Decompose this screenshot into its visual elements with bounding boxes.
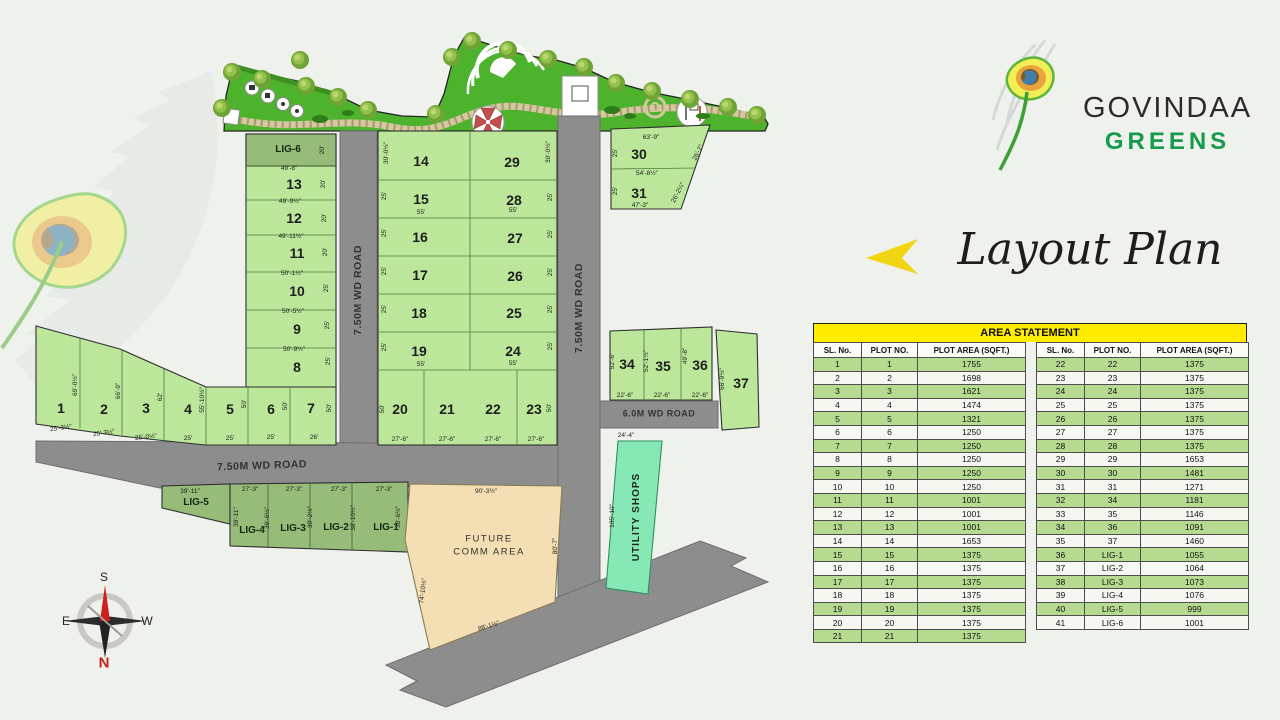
area-statement-row: 36LIG-11055	[1037, 548, 1249, 562]
dim-55-label: 55'	[509, 361, 517, 368]
area-statement-row: 41LIG-61001	[1037, 616, 1249, 630]
plot-15-label: 15	[413, 192, 429, 206]
dim-55-label: 55'	[417, 362, 425, 369]
plot-34-label: 34	[619, 357, 635, 371]
plot-16-label: 16	[412, 230, 428, 244]
area-statement-table-left: SL. No. PLOT NO. PLOT AREA (SQFT.) 11175…	[813, 342, 1026, 643]
plot-24-label: 24	[505, 344, 521, 358]
area-statement-row: 111755	[814, 358, 1026, 372]
plot-3-label: 3	[142, 401, 150, 415]
road-label-6m: 6.0M WD ROAD	[623, 410, 696, 419]
dim-50-label: 50'	[327, 404, 334, 412]
plot-37-label: 37	[733, 376, 749, 390]
dim-25-label: 25'	[267, 435, 275, 442]
plot-block-30-31	[611, 125, 710, 209]
plot-14-label: 14	[413, 154, 429, 168]
title-block: Layout Plan	[860, 218, 1260, 288]
area-statement-row: 19191375	[814, 602, 1026, 616]
area-statement-row: 33351146	[1037, 507, 1249, 521]
plot-5-label: 5	[226, 402, 234, 416]
dim-66-9-label: 66'-9½"	[720, 368, 727, 390]
plot-11-label: 11	[290, 246, 305, 260]
dim-25-label: 25'	[548, 230, 555, 238]
dim-50-1-label: 50'-1½"	[281, 271, 303, 278]
area-statement-row: 20201375	[814, 616, 1026, 630]
dim-49-8-label: 49'-8"	[281, 166, 298, 173]
dim-55-label: 55'	[509, 208, 517, 215]
dim-55-label: 55'	[417, 210, 425, 217]
dim-20-label: 20'	[323, 248, 330, 256]
plot-28-label: 28	[506, 193, 522, 207]
area-statement-row: 30301481	[1037, 466, 1249, 480]
area-statement-row: 24241375	[1037, 385, 1249, 399]
dim-22-6-label: 22'-6"	[692, 393, 709, 400]
col-plot-area: PLOT AREA (SQFT.)	[918, 343, 1026, 358]
dim-50-9-label: 50'-9½"	[283, 347, 305, 354]
dim-54-8-label: 54'-8½"	[636, 171, 658, 178]
plot-1-label: 1	[57, 401, 65, 415]
site-map	[0, 0, 800, 720]
dim-30-0-label: 30'-0½"	[546, 141, 553, 163]
area-statement-row: 25251375	[1037, 398, 1249, 412]
area-statement-row: 441474	[814, 398, 1026, 412]
plot-31-label: 31	[631, 186, 647, 200]
dim-25-label: 25'	[325, 321, 332, 329]
dim-20-label: 20'	[322, 214, 329, 222]
area-statement-row: 18181375	[814, 589, 1026, 603]
dim-69-0-label: 69'-0½"	[73, 374, 80, 396]
dim-52-6-label: 52'-6"	[610, 353, 617, 370]
area-comm-area-label: COMM AREA	[453, 547, 525, 557]
plot-17-label: 17	[412, 268, 428, 282]
dim-26-label: 26'	[310, 435, 318, 442]
dim-39-6-label: 39'-6½"	[265, 507, 272, 529]
dim-25-label: 25'	[382, 305, 389, 313]
compass-south-label: S	[100, 571, 108, 583]
area-statement-row: 11111001	[814, 493, 1026, 507]
plot-lig-3-label: LIG-3	[280, 524, 306, 534]
compass-west-label: W	[141, 615, 152, 627]
dim-25-label: 25'	[382, 229, 389, 237]
area-statement-row: 35371460	[1037, 534, 1249, 548]
plot-36-label: 36	[692, 358, 708, 372]
dim-49-8-label: 49'-8"	[683, 348, 690, 365]
dim-27-6-label: 27'-6"	[392, 437, 409, 444]
plot-2-label: 2	[100, 402, 108, 416]
dim-39-11-label: 39'-11"	[180, 489, 200, 496]
dim-39-11-label: 39'-11"	[234, 507, 241, 527]
dim-24-4-label: 24'-4"	[618, 433, 635, 440]
plot-4-label: 4	[184, 402, 192, 416]
plot-7-label: 7	[307, 401, 315, 415]
area-statement-row: 37LIG-21064	[1037, 561, 1249, 575]
road-label-vertical-1: 7.50M WD ROAD	[353, 245, 364, 335]
plot-10-label: 10	[289, 284, 305, 298]
area-statement-row: 28281375	[1037, 439, 1249, 453]
area-statement-row: 26261375	[1037, 412, 1249, 426]
area-statement-row: 31311271	[1037, 480, 1249, 494]
dim-63-9-label: 63'-9"	[643, 135, 660, 142]
dim-20-label: 20'	[321, 180, 328, 188]
plot-29-label: 29	[504, 155, 520, 169]
area-statement-row: 15151375	[814, 548, 1026, 562]
dim-27-3-label: 27'-3"	[242, 487, 259, 494]
plot-lig-5-label: LIG-5	[183, 498, 209, 508]
dim-25-label: 25'	[382, 267, 389, 275]
plot-22-label: 22	[485, 402, 501, 416]
area-statement-row: 39LIG-41076	[1037, 589, 1249, 603]
dim-22-6-label: 22'-6"	[617, 393, 634, 400]
dim-50-5-label: 50'-5½"	[282, 309, 304, 316]
area-statement-row: 22221375	[1037, 358, 1249, 372]
dim-25-label: 25'	[613, 149, 620, 157]
area-statement-row: 17171375	[814, 575, 1026, 589]
plot-13-label: 13	[286, 177, 302, 191]
area-statement: AREA STATEMENT SL. No. PLOT NO. PLOT ARE…	[813, 323, 1247, 643]
compass-rose	[64, 585, 146, 658]
col-sl-no: SL. No.	[814, 343, 862, 358]
page-title: Layout Plan	[930, 224, 1250, 275]
plot-19-label: 19	[411, 344, 427, 358]
area-future-label: FUTURE	[465, 534, 513, 544]
area-statement-row: 32341181	[1037, 493, 1249, 507]
dim-66-9-label: 66'-9"	[116, 383, 123, 400]
dim-20-label: 20'	[320, 146, 327, 154]
area-statement-row: 14141653	[814, 534, 1026, 548]
brand-name-2: GREENS	[1060, 128, 1275, 156]
plot-lig-6-label: LIG-6	[275, 145, 301, 155]
dim-25-label: 25'	[324, 284, 331, 292]
dim-50-label: 50'	[380, 405, 387, 413]
plot-23-label: 23	[526, 402, 542, 416]
dim-25-label: 25'	[548, 268, 555, 276]
dim-25-label: 25'	[382, 192, 389, 200]
dim-90-3-label: 90'-3½"	[475, 489, 497, 496]
plot-25-label: 25	[506, 306, 522, 320]
col-plot-no: PLOT NO.	[1085, 343, 1141, 358]
road-label-vertical-2: 7.50M WD ROAD	[574, 263, 585, 353]
dim-25-label: 25'	[184, 436, 192, 443]
plot-lig-4-label: LIG-4	[239, 526, 265, 536]
dim-27-3-label: 27'-3"	[376, 487, 393, 494]
dim-27-6-label: 27'-6"	[485, 437, 502, 444]
area-statement-row: 38LIG-31073	[1037, 575, 1249, 589]
dim-27-3-label: 27'-3"	[286, 487, 303, 494]
plot-9-label: 9	[293, 322, 301, 336]
area-statement-row: 991250	[814, 466, 1026, 480]
dim-38-6-label: 38'-6½"	[396, 506, 403, 528]
plot-18-label: 18	[411, 306, 427, 320]
plot-block-central	[378, 131, 557, 445]
brand-name: GOVINDAA	[1060, 92, 1275, 125]
dim-50-label: 50'	[283, 402, 290, 410]
area-statement-title: AREA STATEMENT	[813, 323, 1247, 342]
plot-8-label: 8	[293, 360, 301, 374]
col-sl-no: SL. No.	[1037, 343, 1085, 358]
area-statement-row: 12121001	[814, 507, 1026, 521]
dim-38-10-label: 38'-10½"	[351, 505, 358, 531]
dim-47-3-label: 47'-3"	[632, 203, 649, 210]
plot-blocks	[36, 125, 759, 650]
compass-east-label: E	[62, 615, 70, 627]
dim-25-label: 25'	[548, 193, 555, 201]
area-statement-row: 661250	[814, 425, 1026, 439]
dim-25-label: 25'	[326, 357, 333, 365]
area-statement-row: 27271375	[1037, 425, 1249, 439]
plot-35-label: 35	[655, 359, 671, 373]
plot-20-label: 20	[392, 402, 408, 416]
compass-north-label: N	[99, 656, 110, 671]
col-plot-no: PLOT NO.	[862, 343, 918, 358]
road-vertical-2	[558, 116, 600, 616]
col-plot-area: PLOT AREA (SQFT.)	[1141, 343, 1249, 358]
dim-25-label: 25'	[382, 343, 389, 351]
plot-27-label: 27	[507, 231, 523, 245]
dim-25-label: 25'	[226, 436, 234, 443]
area-statement-row: 771250	[814, 439, 1026, 453]
area-statement-row: 10101250	[814, 480, 1026, 494]
dim-52-1-label: 52'-1½"	[644, 350, 651, 372]
plot-26-label: 26	[507, 269, 523, 283]
area-statement-table-right: SL. No. PLOT NO. PLOT AREA (SQFT.) 22221…	[1036, 342, 1249, 630]
dim-27-6-label: 27'-6"	[439, 437, 456, 444]
dim-25-label: 25'	[548, 342, 555, 350]
dim-22-6-label: 22'-6"	[654, 393, 671, 400]
area-statement-row: 21211375	[814, 629, 1026, 643]
dim-49-9-label: 49'-9½"	[279, 199, 301, 206]
dim-50-label: 50'	[547, 404, 554, 412]
plot-30-label: 30	[631, 147, 647, 161]
dim-80-7-label: 80'-7"	[553, 538, 560, 555]
dim-25-label: 25'	[613, 187, 620, 195]
dim-49-11-label: 49'-11½"	[278, 234, 303, 241]
dim-105-10-label: 105'-10"	[610, 504, 617, 528]
dim-27-6-label: 27'-6"	[528, 437, 545, 444]
layout-plan-page: 7.50M WD ROAD7.50M WD ROAD7.50M WD ROAD6…	[0, 0, 1280, 720]
plot-12-label: 12	[286, 211, 302, 225]
area-statement-row: 881250	[814, 453, 1026, 467]
area-statement-row: 29291653	[1037, 453, 1249, 467]
area-statement-row: 23231375	[1037, 371, 1249, 385]
area-statement-row: 34361091	[1037, 521, 1249, 535]
brand-logo: GOVINDAA GREENS	[975, 30, 1275, 190]
arrow-left-icon	[860, 232, 924, 280]
area-statement-row: 221698	[814, 371, 1026, 385]
dim-30-0-label: 30'-0½"	[384, 142, 391, 164]
plot-lig-2-label: LIG-2	[323, 523, 349, 533]
dim-55-10-label: 55'-10½"	[200, 387, 207, 413]
plot-21-label: 21	[439, 402, 455, 416]
area-statement-row: 40LIG-5999	[1037, 602, 1249, 616]
dim-25-label: 25'	[548, 305, 555, 313]
dim-39-2-label: 39'-2½"	[308, 506, 315, 528]
area-statement-row: 13131001	[814, 521, 1026, 535]
dim-27-3-label: 27'-3"	[331, 487, 348, 494]
plot-6-label: 6	[267, 402, 275, 416]
garden-park	[213, 32, 768, 138]
dim-50-label: 50'	[242, 400, 249, 408]
area-statement-row: 551321	[814, 412, 1026, 426]
util-utility-shops-label: UTILITY SHOPS	[632, 473, 642, 561]
area-statement-row: 16161375	[814, 561, 1026, 575]
area-statement-row: 331621	[814, 385, 1026, 399]
dim-62-label: 62'	[158, 393, 165, 401]
